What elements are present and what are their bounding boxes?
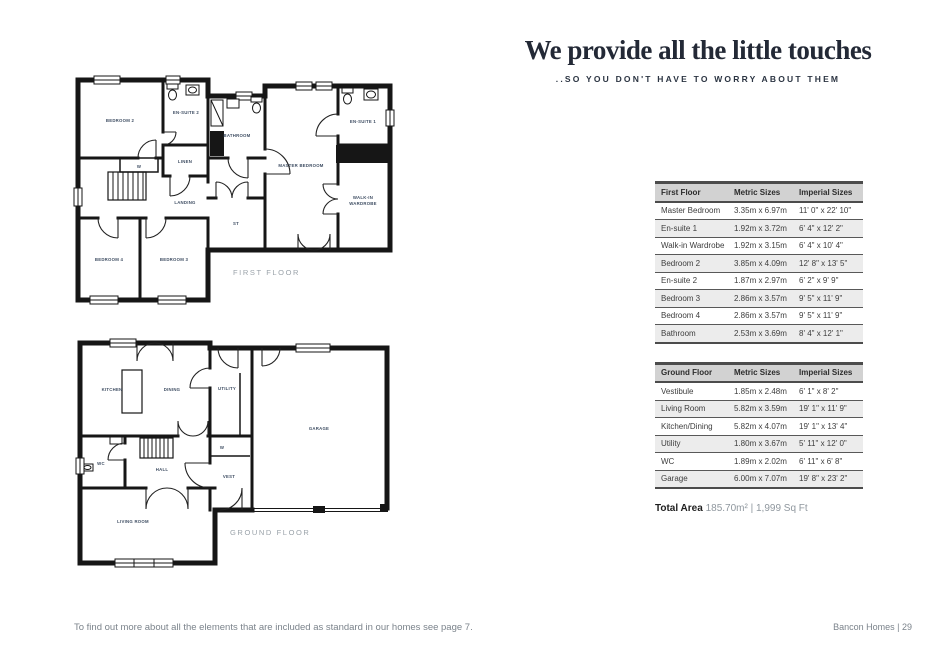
room-cell: Utility (655, 435, 728, 453)
bathroom-fixtures (167, 84, 378, 126)
room-label-store: ST (233, 221, 239, 226)
room-label-bedroom-2: BEDROOM 2 (106, 118, 135, 123)
imperial-cell: 19' 8" x 23' 2" (793, 470, 863, 488)
column-header: Metric Sizes (728, 363, 793, 382)
metric-cell: 6.00m x 7.07m (728, 470, 793, 488)
room-label-walk-in: WALK-IN (353, 195, 373, 200)
room-cell: Bedroom 3 (655, 290, 728, 308)
room-cell: Bedroom 4 (655, 307, 728, 325)
heading-block: We provide all the little touches ..SO Y… (455, 36, 940, 84)
total-area-value: 185.70m² | 1,999 Sq Ft (706, 503, 808, 514)
imperial-cell: 9' 5" x 11' 9" (793, 307, 863, 325)
table-row: Bedroom 32.86m x 3.57m9' 5" x 11' 9" (655, 290, 863, 308)
room-label-bedroom-4: BEDROOM 4 (95, 257, 124, 262)
imperial-cell: 9' 5" x 11' 9" (793, 290, 863, 308)
total-area: Total Area 185.70m² | 1,999 Sq Ft (655, 503, 863, 514)
metric-cell: 2.53m x 3.69m (728, 325, 793, 343)
room-cell: Kitchen/Dining (655, 418, 728, 436)
ground-floor-table: Ground Floor Metric Sizes Imperial Sizes… (655, 362, 863, 490)
room-label-master-bedroom: MASTER BEDROOM (278, 163, 323, 168)
table-row: En-suite 21.87m x 2.97m6' 2" x 9' 9" (655, 272, 863, 290)
metric-cell: 5.82m x 4.07m (728, 418, 793, 436)
table-row: WC1.89m x 2.02m6' 11" x 6' 8" (655, 453, 863, 471)
imperial-cell: 6' 1" x 8' 2" (793, 382, 863, 400)
room-cell: Vestibule (655, 382, 728, 400)
room-cell: En-suite 1 (655, 220, 728, 238)
metric-cell: 1.92m x 3.15m (728, 237, 793, 255)
room-label-wardrobe: W (137, 164, 142, 169)
room-cell: Master Bedroom (655, 202, 728, 220)
table-row: Walk-in Wardrobe1.92m x 3.15m6' 4" x 10'… (655, 237, 863, 255)
imperial-cell: 8' 4" x 12' 1" (793, 325, 863, 343)
column-header: Imperial Sizes (793, 183, 863, 202)
page-title: We provide all the little touches (455, 36, 940, 66)
kitchen-island (122, 370, 142, 413)
interior-walls (80, 348, 252, 510)
room-label-bedroom-3: BEDROOM 3 (160, 257, 189, 262)
metric-cell: 1.85m x 2.48m (728, 382, 793, 400)
imperial-cell: 6' 11" x 6' 8" (793, 453, 863, 471)
first-floor-caption: FIRST FLOOR (233, 268, 300, 277)
total-area-label: Total Area (655, 503, 703, 514)
table-row: Kitchen/Dining5.82m x 4.07m19' 1" x 13' … (655, 418, 863, 436)
room-label-dining: DINING (164, 387, 181, 392)
metric-cell: 1.87m x 2.97m (728, 272, 793, 290)
metric-cell: 5.82m x 3.59m (728, 400, 793, 418)
room-cell: Walk-in Wardrobe (655, 237, 728, 255)
stairs (108, 158, 158, 200)
room-label-living-room: LIVING ROOM (117, 519, 149, 524)
ground-floor-plan: KITCHEN DINING UTILITY GARAGE WC HALL W … (70, 318, 400, 568)
metric-cell: 2.86m x 3.57m (728, 290, 793, 308)
column-header: First Floor (655, 183, 728, 202)
room-cell: Bedroom 2 (655, 255, 728, 273)
column-header: Imperial Sizes (793, 363, 863, 382)
room-label-wardrobe-2: WARDROBE (349, 201, 377, 206)
room-label-linen: LINEN (178, 159, 192, 164)
ground-floor-caption: GROUND FLOOR (230, 528, 310, 537)
table-row: Vestibule1.85m x 2.48m6' 1" x 8' 2" (655, 382, 863, 400)
imperial-cell: 6' 4" x 12' 2" (793, 220, 863, 238)
room-cell: Garage (655, 470, 728, 488)
room-label-bathroom: BATHROOM (224, 133, 251, 138)
room-label-en-suite-2: EN-SUITE 2 (173, 110, 199, 115)
metric-cell: 3.85m x 4.09m (728, 255, 793, 273)
room-label-landing: LANDING (174, 200, 196, 205)
table-row: Utility1.80m x 3.67m5' 11" x 12' 0" (655, 435, 863, 453)
column-header: Metric Sizes (728, 183, 793, 202)
room-cell: En-suite 2 (655, 272, 728, 290)
imperial-cell: 19' 1" x 11' 9" (793, 400, 863, 418)
room-label-kitchen: KITCHEN (102, 387, 123, 392)
room-label-closet: W (220, 445, 225, 450)
size-tables: First Floor Metric Sizes Imperial Sizes … (655, 181, 863, 514)
imperial-cell: 5' 11" x 12' 0" (793, 435, 863, 453)
room-label-en-suite-1: EN-SUITE 1 (350, 119, 376, 124)
footer-note: To find out more about all the elements … (74, 622, 473, 633)
room-label-utility: UTILITY (218, 386, 236, 391)
table-row: Master Bedroom3.35m x 6.97m11' 0" x 22' … (655, 202, 863, 220)
imperial-cell: 6' 2" x 9' 9" (793, 272, 863, 290)
imperial-cell: 6' 4" x 10' 4" (793, 237, 863, 255)
stairs (140, 438, 173, 458)
room-label-vestibule: VEST (223, 474, 235, 479)
room-label-garage: GARAGE (309, 426, 329, 431)
table-row: Living Room5.82m x 3.59m19' 1" x 11' 9" (655, 400, 863, 418)
imperial-cell: 11' 0" x 22' 10" (793, 202, 863, 220)
page-subtitle: ..SO YOU DON'T HAVE TO WORRY ABOUT THEM (455, 74, 940, 84)
door-swings (108, 343, 280, 510)
metric-cell: 2.86m x 3.57m (728, 307, 793, 325)
metric-cell: 1.80m x 3.67m (728, 435, 793, 453)
room-label-wc: WC (97, 461, 105, 466)
room-cell: Living Room (655, 400, 728, 418)
table-row: Bedroom 23.85m x 4.09m12' 8" x 13' 5" (655, 255, 863, 273)
table-header-row: Ground Floor Metric Sizes Imperial Sizes (655, 363, 863, 382)
table-header-row: First Floor Metric Sizes Imperial Sizes (655, 183, 863, 202)
first-floor-table: First Floor Metric Sizes Imperial Sizes … (655, 181, 863, 344)
metric-cell: 3.35m x 6.97m (728, 202, 793, 220)
metric-cell: 1.89m x 2.02m (728, 453, 793, 471)
page-number: Bancon Homes | 29 (833, 622, 912, 632)
room-label-hall: HALL (156, 467, 169, 472)
room-cell: Bathroom (655, 325, 728, 343)
table-row: Bathroom2.53m x 3.69m8' 4" x 12' 1" (655, 325, 863, 343)
room-cell: WC (655, 453, 728, 471)
imperial-cell: 12' 8" x 13' 5" (793, 255, 863, 273)
table-row: Bedroom 42.86m x 3.57m9' 5" x 11' 9" (655, 307, 863, 325)
table-row: Garage6.00m x 7.07m19' 8" x 23' 2" (655, 470, 863, 488)
table-row: En-suite 11.92m x 3.72m6' 4" x 12' 2" (655, 220, 863, 238)
imperial-cell: 19' 1" x 13' 4" (793, 418, 863, 436)
first-floor-plan: BEDROOM 2 EN-SUITE 2 LINEN W LANDING BAT… (70, 64, 400, 314)
metric-cell: 1.92m x 3.72m (728, 220, 793, 238)
column-header: Ground Floor (655, 363, 728, 382)
